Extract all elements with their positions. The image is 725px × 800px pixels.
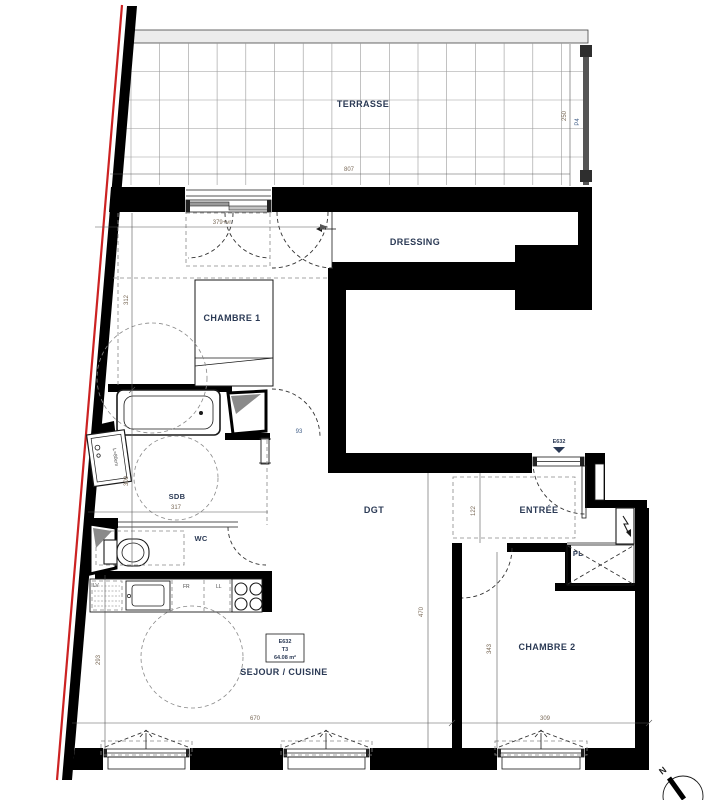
wall-kitchen-stub bbox=[262, 571, 272, 612]
wall-right-exterior bbox=[635, 508, 649, 770]
dim-sejour-width: 670 bbox=[250, 716, 261, 722]
label-wc: WC bbox=[194, 534, 207, 543]
wall-central-vertical bbox=[328, 268, 346, 473]
terrace-edge-band bbox=[126, 30, 588, 43]
wall-dressing-bottom bbox=[332, 262, 515, 290]
dim-entree-depth: 122 bbox=[471, 505, 477, 516]
electrical-panel bbox=[616, 508, 634, 544]
wall-bottom-4 bbox=[585, 748, 649, 770]
label-entree: ENTRÉE bbox=[520, 505, 559, 515]
wall-kitchen-top bbox=[95, 571, 268, 579]
label-dgt: DGT bbox=[364, 505, 384, 515]
dim-ch1-window: 379+vr bbox=[213, 220, 232, 226]
entry-code-label: E632 bbox=[553, 439, 566, 445]
wall-pl-left bbox=[565, 545, 571, 587]
wall-entree-top bbox=[328, 453, 532, 473]
cooktop bbox=[232, 579, 262, 612]
wall-top-left bbox=[109, 187, 185, 212]
wall-dressing-step bbox=[515, 245, 592, 310]
label-sejour: SEJOUR / CUISINE bbox=[240, 667, 327, 677]
unit-area: 64.08 m² bbox=[274, 654, 296, 661]
dim-terrace-width: 807 bbox=[344, 167, 355, 173]
dim-sdb-height: 309 bbox=[124, 475, 130, 486]
dim-terrace-depth: 250 bbox=[562, 110, 568, 121]
label-sdb: SDB bbox=[169, 492, 186, 501]
label-chambre1: CHAMBRE 1 bbox=[203, 313, 260, 323]
dim-sdb-width: 317 bbox=[171, 505, 182, 511]
window-panel-2 bbox=[229, 206, 269, 210]
label-dressing: DRESSING bbox=[390, 237, 440, 247]
kitchen-counter: LV FR LL bbox=[90, 579, 262, 612]
label-chambre2: CHAMBRE 2 bbox=[518, 642, 575, 652]
washer-label: LL bbox=[216, 584, 222, 590]
dim-dgt-length: 470 bbox=[419, 606, 425, 617]
label-placard: PL bbox=[573, 549, 583, 558]
unit-code: E632 bbox=[279, 639, 292, 645]
window-panel-1 bbox=[189, 202, 229, 206]
dim-ch2-width: 309 bbox=[540, 716, 551, 722]
wall-ch2-left bbox=[452, 543, 462, 748]
wall-entree-step bbox=[585, 500, 647, 508]
wall-ch2-top bbox=[507, 543, 567, 552]
unit-type: T3 bbox=[282, 647, 288, 653]
dim-sdb-door: 93 bbox=[296, 429, 303, 435]
wall-bottom-2 bbox=[190, 748, 283, 770]
floor-plan: L=80cm LV bbox=[0, 0, 725, 800]
fridge-label: FR bbox=[183, 584, 190, 590]
railing-post-top bbox=[580, 45, 592, 57]
dim-sejour-height: 293 bbox=[96, 654, 102, 665]
wall-bottom-1 bbox=[72, 748, 103, 770]
bathtub-drain bbox=[199, 411, 203, 415]
entree-radiator bbox=[595, 464, 604, 500]
dishwasher-label: LV bbox=[93, 583, 99, 589]
plan-background bbox=[0, 0, 725, 800]
dim-ch2-height: 343 bbox=[487, 643, 493, 654]
label-terrasse: TERRASSE bbox=[337, 99, 389, 109]
toilet bbox=[104, 539, 149, 566]
railing-label: P4 bbox=[575, 118, 581, 126]
sdb-duct bbox=[228, 391, 266, 434]
kitchen-sink bbox=[126, 581, 170, 610]
terrace-railing bbox=[583, 48, 589, 185]
wall-bottom-3 bbox=[370, 748, 497, 770]
dim-ch1-height: 312 bbox=[124, 294, 130, 305]
bathtub bbox=[117, 390, 220, 435]
railing-post-bottom bbox=[580, 170, 592, 182]
towel-radiator bbox=[259, 438, 271, 464]
wall-top-right bbox=[272, 187, 592, 212]
